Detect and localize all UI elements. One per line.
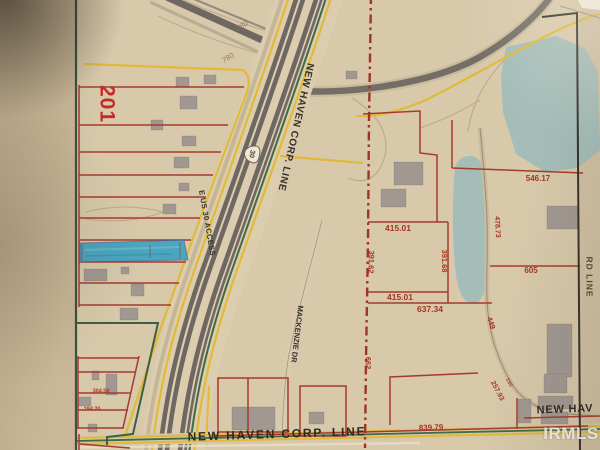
dimension-label-637-34: 637.34 [417, 305, 443, 314]
dimension-label-194-20: 194.20 [84, 407, 101, 413]
irmls-watermark: IRMLS [543, 424, 598, 444]
pond-large [501, 36, 600, 172]
highlighted-parcel [80, 240, 188, 262]
shield-number: 30 [248, 150, 256, 159]
right-edge-road-label: RD LINE [585, 257, 594, 298]
dimension-label-391-62: 391.62 [367, 250, 375, 273]
corp-line-right-label: NEW HAV [536, 404, 593, 417]
left-margin [0, 0, 76, 450]
dimension-label-304-50: 304.50 [93, 389, 110, 395]
dimension-label-605: 605 [524, 267, 537, 275]
dimension-label-415-01-bottom: 415.01 [387, 293, 413, 302]
dimension-label-415-01-top: 415.01 [385, 224, 411, 233]
dimension-label-662: 662 [364, 357, 372, 370]
plat-map-photo: 201 NEW HAVEN CORP. LINE E US 30 ACCESS … [0, 0, 600, 450]
dimension-label-546-17: 546.17 [526, 175, 550, 183]
dimension-label-478-73: 478.73 [493, 216, 501, 238]
dimension-label-391-68: 391.68 [440, 250, 448, 273]
dimension-label-839-79: 839.79 [419, 424, 444, 433]
parcel-201-label: 201 [97, 85, 118, 123]
